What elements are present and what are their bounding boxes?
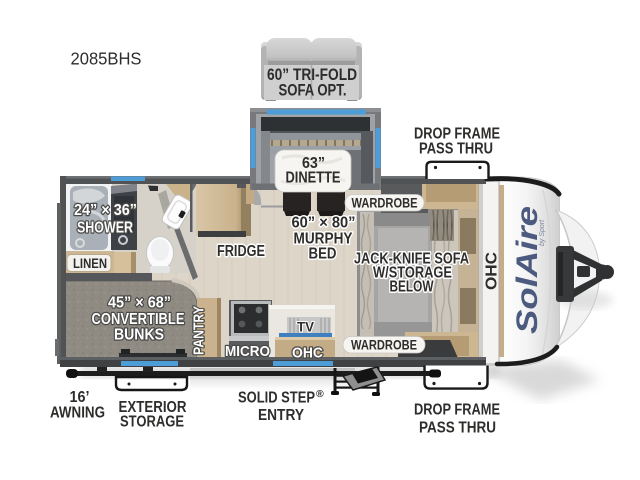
svg-text:TV: TV	[297, 319, 315, 335]
svg-text:FRIDGE: FRIDGE	[217, 243, 265, 260]
svg-text:LINEN: LINEN	[73, 256, 107, 271]
svg-text:PANTRY: PANTRY	[191, 306, 208, 355]
svg-text:16’: 16’	[70, 389, 90, 406]
svg-text:ENTRY: ENTRY	[258, 407, 304, 424]
svg-text:STORAGE: STORAGE	[120, 414, 184, 431]
svg-text:OHC: OHC	[292, 345, 323, 362]
svg-text:PASS THRU: PASS THRU	[419, 420, 496, 437]
svg-text:24” × 36”: 24” × 36”	[74, 202, 137, 219]
svg-text:SHOWER: SHOWER	[77, 220, 133, 237]
svg-text:DINETTE: DINETTE	[286, 170, 341, 187]
svg-text:WARDROBE: WARDROBE	[351, 338, 417, 353]
svg-text:45” × 68”: 45” × 68”	[108, 295, 171, 312]
svg-text:AWNING: AWNING	[50, 405, 105, 422]
svg-text:2085BHS: 2085BHS	[71, 49, 142, 69]
svg-text:by Sport: by Sport	[539, 219, 546, 246]
svg-text:60” × 80”: 60” × 80”	[292, 215, 356, 232]
svg-text:WARDROBE: WARDROBE	[352, 196, 418, 211]
svg-text:®: ®	[316, 388, 324, 400]
svg-text:OHC: OHC	[484, 252, 501, 290]
svg-text:BELOW: BELOW	[390, 279, 434, 296]
svg-text:CONVERTIBLE: CONVERTIBLE	[92, 311, 185, 328]
svg-text:PASS THRU: PASS THRU	[419, 141, 493, 158]
svg-text:BED: BED	[309, 246, 337, 263]
svg-text:SOLID STEP: SOLID STEP	[238, 390, 315, 407]
svg-text:BUNKS: BUNKS	[114, 327, 164, 344]
svg-text:MICRO: MICRO	[225, 343, 270, 360]
svg-text:SOFA OPT.: SOFA OPT.	[279, 82, 347, 100]
svg-text:DROP FRAME: DROP FRAME	[414, 402, 500, 419]
